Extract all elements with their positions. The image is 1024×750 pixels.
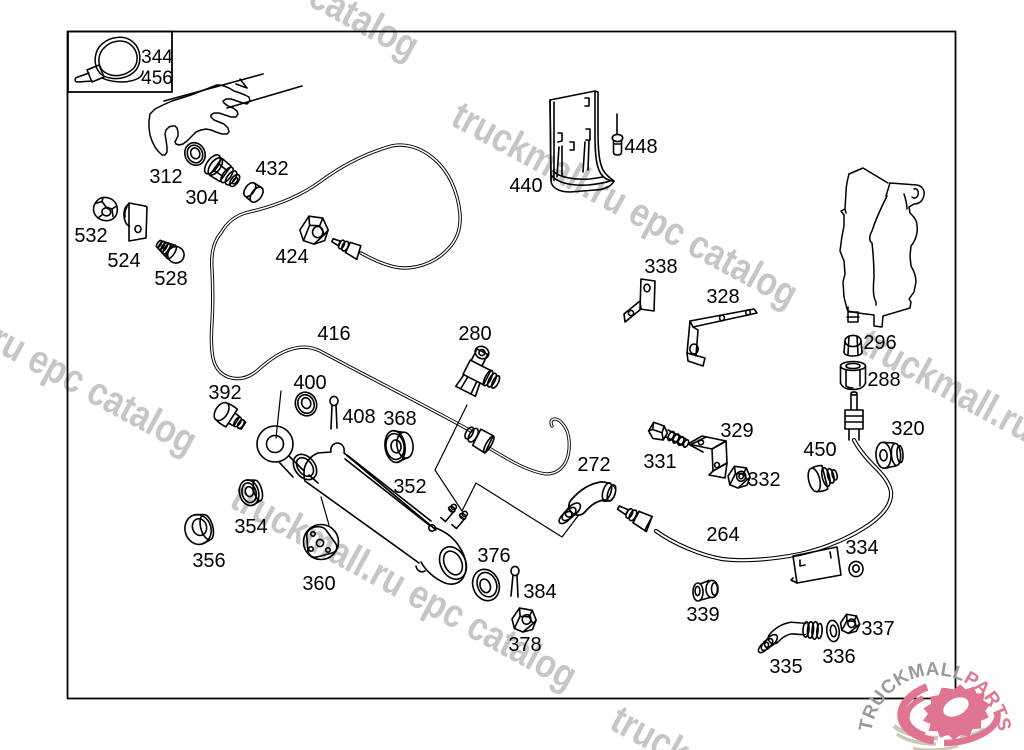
svg-text:450: 450 [803, 439, 836, 461]
svg-text:296: 296 [863, 332, 896, 354]
svg-text:344: 344 [141, 47, 173, 68]
svg-text:378: 378 [508, 634, 541, 656]
svg-text:456: 456 [141, 68, 173, 89]
svg-text:356: 356 [192, 550, 225, 572]
svg-text:400: 400 [293, 372, 326, 394]
svg-text:448: 448 [624, 136, 657, 158]
svg-text:360: 360 [302, 573, 335, 595]
svg-text:335: 335 [769, 656, 802, 678]
svg-text:312: 312 [149, 166, 182, 188]
svg-text:432: 432 [255, 158, 288, 180]
svg-text:264: 264 [706, 524, 739, 546]
svg-text:392: 392 [208, 382, 241, 404]
svg-text:334: 334 [845, 537, 878, 559]
svg-text:424: 424 [275, 246, 308, 268]
svg-text:408: 408 [342, 406, 375, 428]
svg-text:288: 288 [867, 369, 900, 391]
svg-text:280: 280 [458, 323, 491, 345]
svg-text:354: 354 [234, 516, 267, 538]
svg-text:440: 440 [509, 175, 542, 197]
svg-text:320: 320 [891, 418, 924, 440]
svg-text:304: 304 [185, 187, 218, 209]
svg-text:532: 532 [74, 225, 107, 247]
svg-text:337: 337 [861, 618, 894, 640]
svg-text:416: 416 [317, 323, 350, 345]
svg-text:368: 368 [383, 408, 416, 430]
svg-text:376: 376 [477, 545, 510, 567]
svg-text:524: 524 [107, 250, 140, 272]
svg-text:338: 338 [644, 256, 677, 278]
svg-text:272: 272 [577, 454, 610, 476]
svg-text:332: 332 [747, 469, 780, 491]
svg-text:329: 329 [720, 420, 753, 442]
svg-text:331: 331 [643, 451, 676, 473]
svg-text:336: 336 [822, 646, 855, 668]
svg-text:328: 328 [706, 286, 739, 308]
svg-text:339: 339 [686, 604, 719, 626]
svg-text:384: 384 [523, 581, 556, 603]
svg-text:528: 528 [154, 268, 187, 290]
